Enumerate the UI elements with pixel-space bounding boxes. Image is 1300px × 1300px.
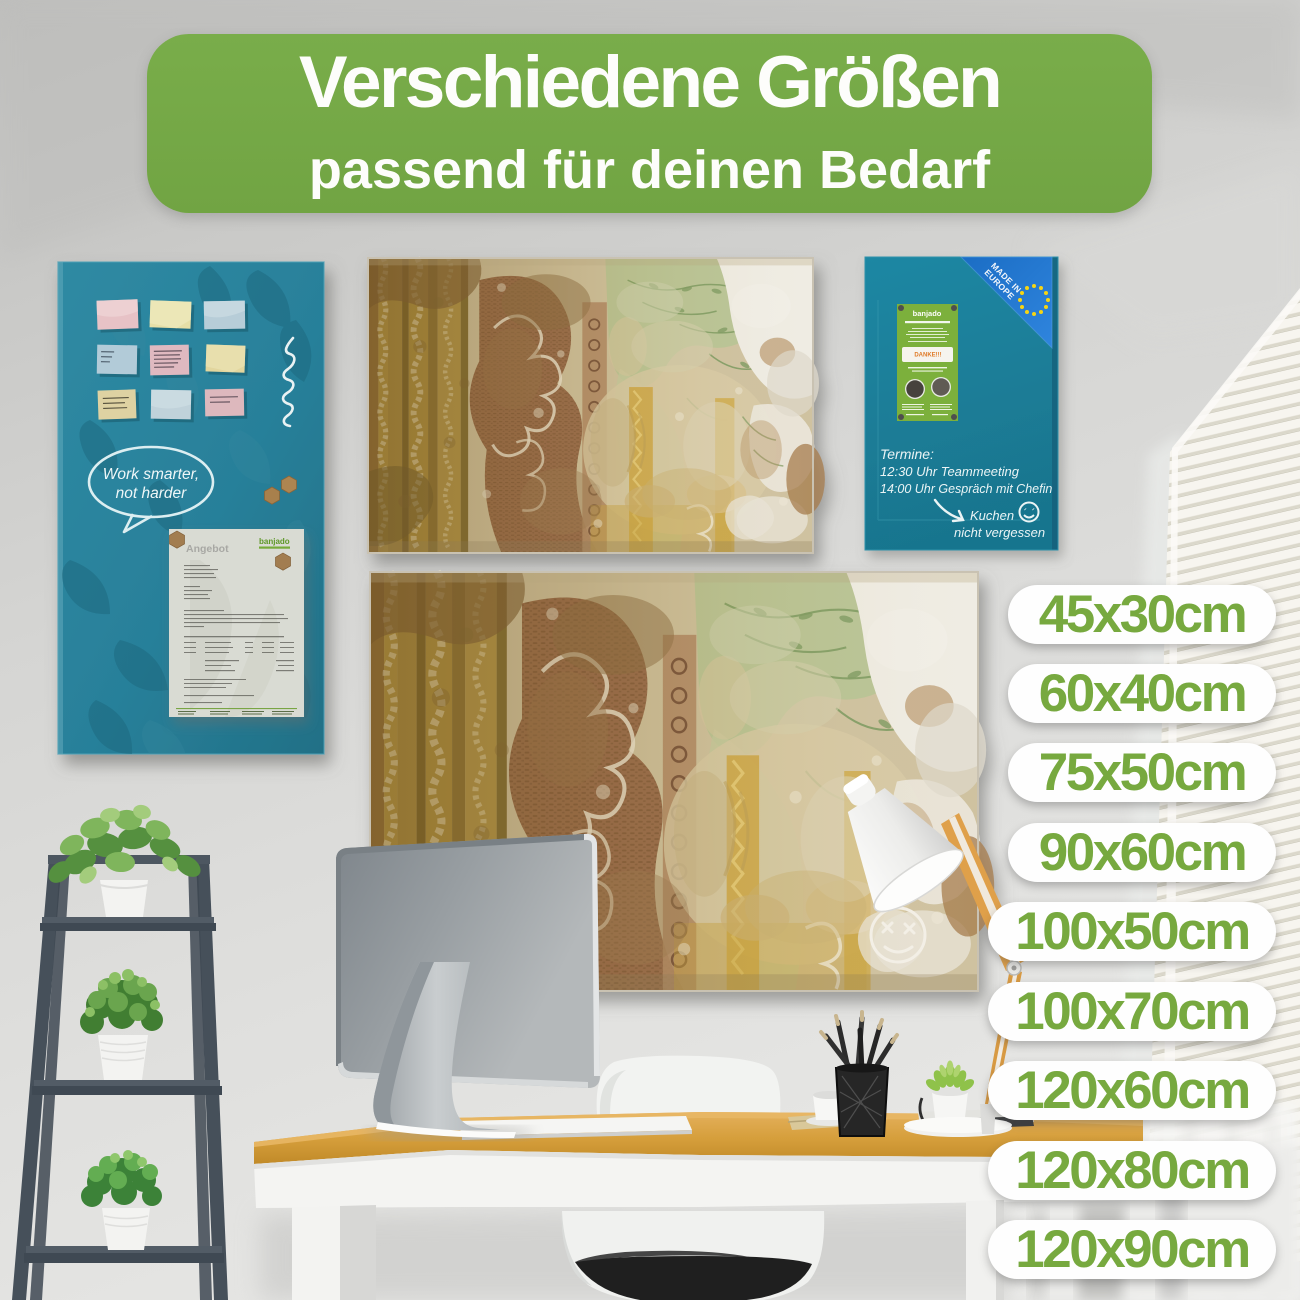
svg-text:14:00 Uhr Gespräch mit Chefin: 14:00 Uhr Gespräch mit Chefin [880, 482, 1052, 496]
svg-text:Termine:: Termine: [880, 446, 934, 462]
svg-text:Work smarter,: Work smarter, [103, 466, 199, 483]
svg-text:banjado: banjado [913, 309, 942, 318]
svg-text:12:30 Uhr Teammeeting: 12:30 Uhr Teammeeting [880, 464, 1020, 479]
svg-text:DANKE!!!: DANKE!!! [914, 353, 941, 359]
svg-text:nicht vergessen: nicht vergessen [954, 525, 1045, 540]
svg-text:not harder: not harder [116, 485, 187, 502]
svg-text:banjado: banjado [259, 537, 290, 546]
svg-text:Kuchen: Kuchen [970, 508, 1014, 523]
svg-text:Angebot: Angebot [186, 543, 229, 555]
